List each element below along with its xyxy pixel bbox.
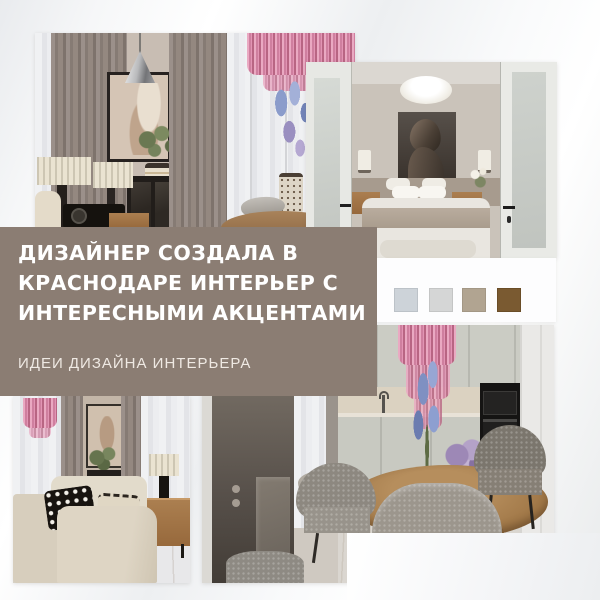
faucet-body bbox=[382, 395, 385, 415]
wall-sconce bbox=[358, 150, 371, 173]
door-handle bbox=[340, 204, 351, 207]
chair-seat bbox=[304, 507, 370, 533]
built-in-microwave bbox=[483, 391, 517, 415]
color-palette-card bbox=[375, 258, 556, 322]
palette-swatch-greige bbox=[462, 288, 486, 312]
title-line-3: ИНТЕРЕСНЫМИ АКЦЕНТАМИ bbox=[18, 298, 370, 328]
post-subtitle: ИДЕИ ДИЗАЙНА ИНТЕРЬЕРА bbox=[18, 355, 251, 372]
foreground-chair-fabric bbox=[226, 551, 304, 583]
pink-chandelier-fragment bbox=[23, 398, 57, 428]
sofa-corner bbox=[35, 191, 61, 228]
pendant-cord bbox=[139, 33, 141, 53]
title-line-1: ДИЗАЙНЕР СОЗДАЛА В bbox=[18, 238, 370, 268]
black-lamp-body bbox=[159, 476, 169, 500]
door-handle bbox=[503, 206, 515, 209]
plant bbox=[85, 446, 119, 472]
photo-living-room-sofa bbox=[13, 396, 190, 583]
door-lock bbox=[507, 216, 511, 223]
pink-chandelier-tier bbox=[29, 428, 51, 438]
door-knob bbox=[232, 499, 240, 507]
palette-swatch-pale-blue-gray bbox=[394, 288, 418, 312]
wood-sideboard bbox=[109, 213, 149, 228]
frosted-glass-pane bbox=[512, 72, 546, 248]
bed-bench bbox=[380, 240, 476, 258]
chair-seat bbox=[478, 469, 542, 495]
saucer-pendant-lamp bbox=[400, 76, 452, 104]
faucet bbox=[376, 389, 390, 415]
frosted-glass-pane bbox=[314, 78, 340, 234]
artwork-profile-head bbox=[398, 112, 456, 186]
palette-swatch-light-gray bbox=[429, 288, 453, 312]
door-frame bbox=[202, 381, 212, 583]
turntable-platter bbox=[71, 208, 87, 224]
white-corner-card bbox=[347, 533, 600, 600]
flowers bbox=[466, 164, 492, 194]
pleated-lamp-shade bbox=[93, 162, 133, 188]
pleated-lamp-shade bbox=[37, 157, 91, 185]
door-knob bbox=[232, 485, 240, 493]
sofa-arm bbox=[57, 506, 157, 583]
title-line-2: КРАСНОДАРЕ ИНТЕРЬЕР С bbox=[18, 268, 370, 298]
cone-pendant-lamp bbox=[125, 51, 155, 83]
palette-swatch-brown bbox=[497, 288, 521, 312]
post-title: ДИЗАЙНЕР СОЗДАЛА В КРАСНОДАРЕ ИНТЕРЬЕР С… bbox=[18, 238, 370, 328]
door-right bbox=[500, 62, 557, 258]
bed-throw bbox=[362, 208, 490, 228]
pleated-lamp-shade bbox=[149, 454, 179, 476]
headline-block: ДИЗАЙНЕР СОЗДАЛА В КРАСНОДАРЕ ИНТЕРЬЕР С… bbox=[0, 227, 377, 396]
curtain-right bbox=[169, 33, 227, 228]
social-post-collage: ДИЗАЙНЕР СОЗДАЛА В КРАСНОДАРЕ ИНТЕРЬЕР С… bbox=[0, 0, 600, 600]
